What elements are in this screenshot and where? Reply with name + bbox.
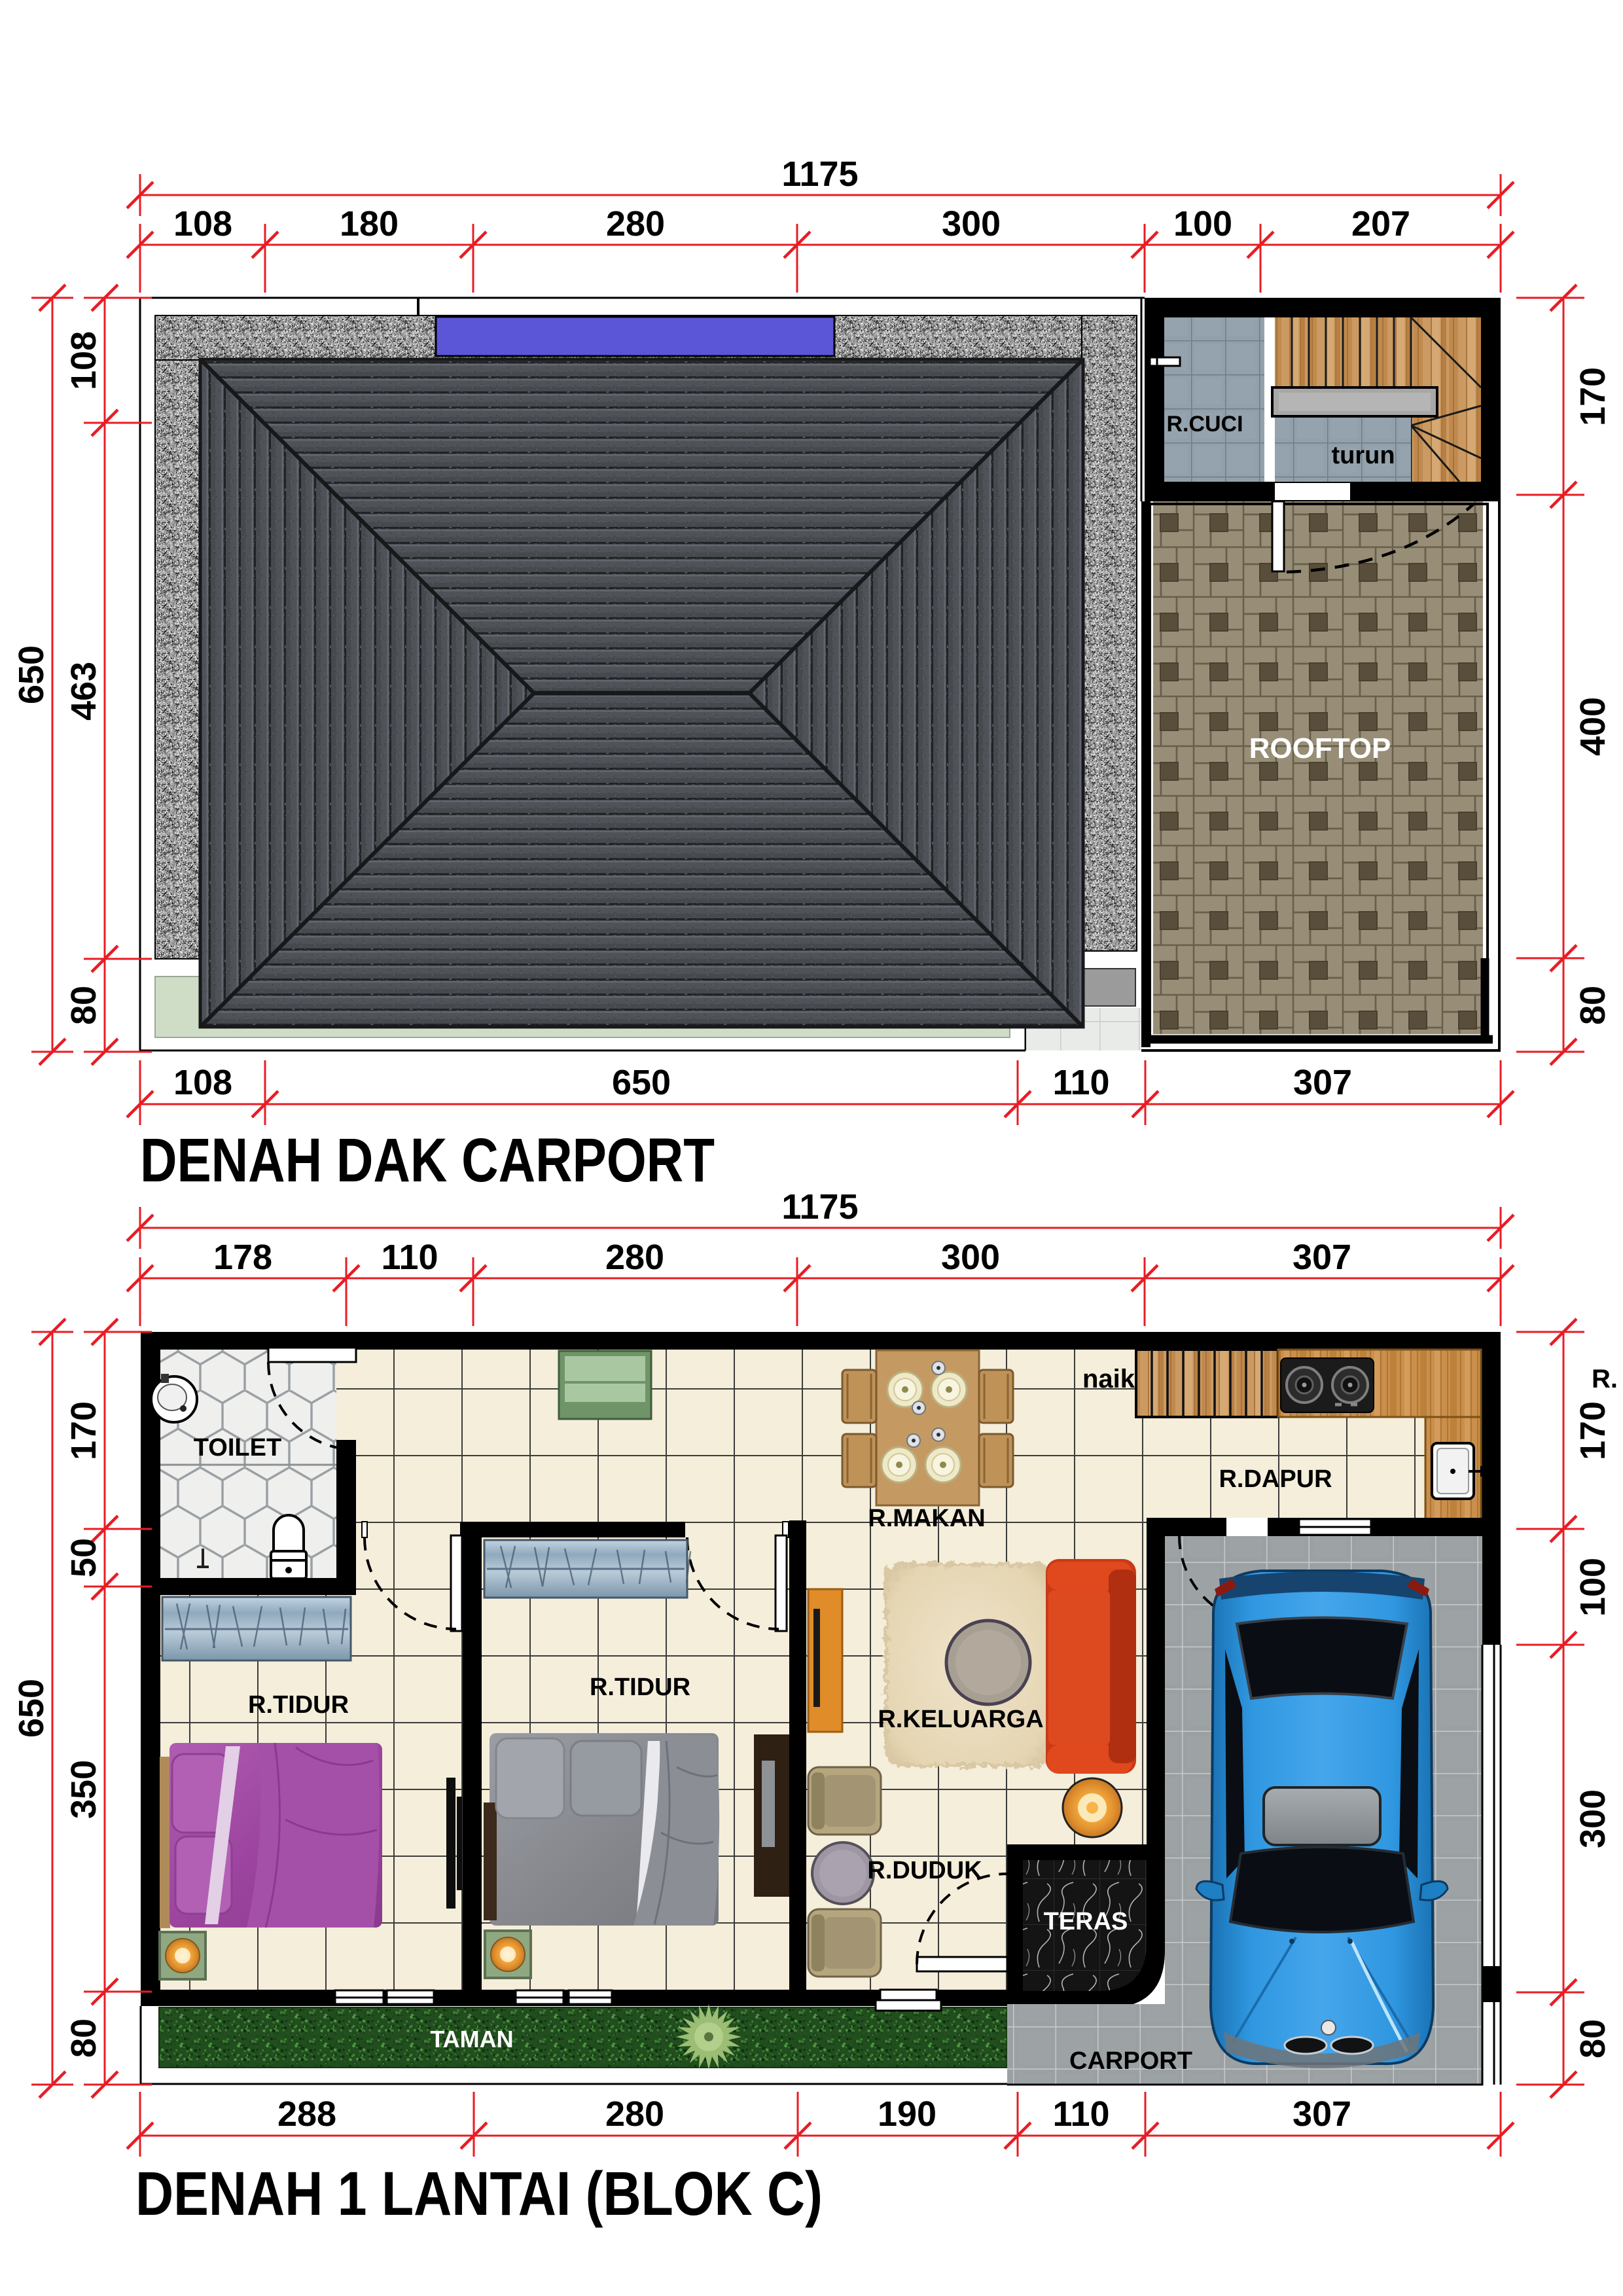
svg-text:80: 80 [1573, 2019, 1613, 2058]
svg-text:110: 110 [381, 1238, 438, 1277]
svg-text:DENAH 1 LANTAI (BLOK C): DENAH 1 LANTAI (BLOK C) [135, 2159, 823, 2229]
svg-text:100: 100 [1173, 204, 1232, 243]
svg-text:R.DUDUK: R.DUDUK [867, 1857, 982, 1884]
svg-text:650: 650 [12, 645, 51, 704]
svg-text:300: 300 [1573, 1789, 1613, 1848]
svg-text:400: 400 [1573, 697, 1613, 756]
svg-text:CARPORT: CARPORT [1069, 2047, 1192, 2075]
svg-text:ROOFTOP: ROOFTOP [1249, 732, 1391, 764]
svg-text:turun: turun [1331, 442, 1395, 469]
svg-text:178: 178 [213, 1238, 272, 1277]
svg-text:TAMAN: TAMAN [430, 2026, 513, 2053]
svg-text:300: 300 [941, 1238, 1000, 1277]
svg-text:R.: R. [1592, 1365, 1618, 1393]
svg-text:170: 170 [64, 1401, 103, 1460]
svg-text:288: 288 [277, 2094, 336, 2134]
svg-text:280: 280 [605, 2094, 664, 2134]
svg-text:DENAH DAK CARPORT: DENAH DAK CARPORT [140, 1126, 715, 1195]
svg-text:180: 180 [340, 204, 399, 243]
svg-text:300: 300 [942, 204, 1001, 243]
svg-text:50: 50 [64, 1538, 103, 1577]
svg-text:170: 170 [1573, 367, 1613, 426]
svg-text:TOILET: TOILET [194, 1434, 281, 1462]
svg-text:280: 280 [605, 1238, 664, 1277]
svg-text:110: 110 [1052, 1063, 1109, 1102]
svg-text:R.DAPUR: R.DAPUR [1219, 1465, 1332, 1493]
svg-text:R.MAKAN: R.MAKAN [868, 1505, 985, 1532]
svg-text:1175: 1175 [781, 1187, 858, 1227]
svg-text:650: 650 [612, 1063, 671, 1102]
svg-text:R.TIDUR: R.TIDUR [248, 1691, 349, 1719]
svg-text:170: 170 [1573, 1401, 1613, 1460]
svg-text:350: 350 [64, 1760, 103, 1819]
svg-text:307: 307 [1293, 2094, 1351, 2134]
svg-text:R.TIDUR: R.TIDUR [590, 1674, 690, 1701]
svg-text:80: 80 [1573, 986, 1613, 1025]
svg-text:80: 80 [64, 2018, 103, 2058]
svg-text:108: 108 [173, 1063, 232, 1102]
svg-text:650: 650 [12, 1679, 51, 1738]
svg-text:naik: naik [1082, 1365, 1135, 1393]
svg-text:463: 463 [64, 662, 103, 721]
svg-text:307: 307 [1293, 1238, 1351, 1277]
svg-text:190: 190 [878, 2094, 936, 2134]
svg-text:307: 307 [1293, 1063, 1352, 1102]
svg-text:207: 207 [1351, 204, 1410, 243]
svg-text:110: 110 [1052, 2094, 1109, 2134]
svg-text:80: 80 [64, 986, 103, 1025]
svg-text:108: 108 [173, 204, 232, 243]
svg-text:R.KELUARGA: R.KELUARGA [878, 1706, 1043, 1733]
svg-text:TERAS: TERAS [1044, 1908, 1128, 1935]
svg-text:100: 100 [1573, 1558, 1613, 1617]
svg-text:108: 108 [64, 331, 103, 390]
svg-text:R.CUCI: R.CUCI [1166, 412, 1243, 437]
svg-text:1175: 1175 [781, 154, 858, 194]
svg-text:280: 280 [606, 204, 665, 243]
